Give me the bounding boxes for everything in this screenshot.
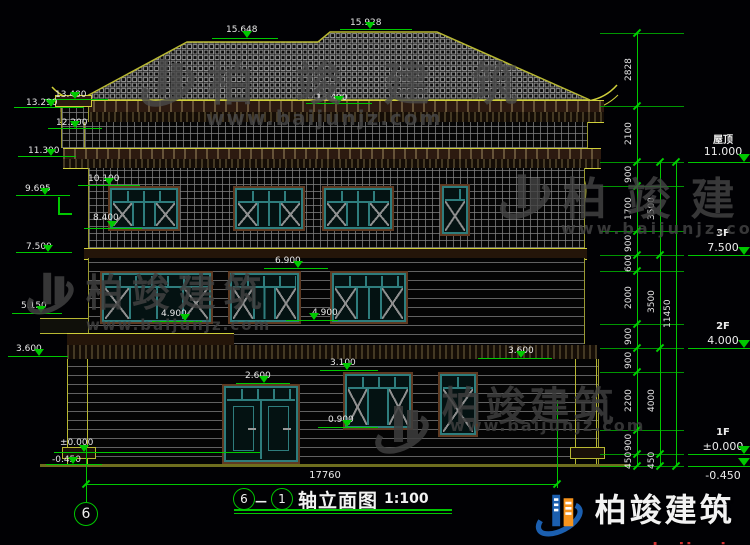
extension-line: [600, 466, 684, 467]
window-3f-small: [440, 184, 470, 236]
ground-line: [40, 464, 630, 467]
dim-value: 2000: [622, 271, 636, 324]
elevation-marker: [18, 156, 76, 157]
axis-line-6: [86, 448, 87, 502]
title-underline: [234, 509, 452, 511]
door-leaf: [227, 401, 262, 459]
window-3f-3: [322, 186, 394, 231]
window-transom: [113, 191, 175, 203]
elevation-marker: [286, 320, 338, 321]
axis-bubble-6: 6: [74, 502, 98, 526]
watermark-left: 柏竣建筑 www.baijunjz.com: [24, 262, 271, 334]
watermark-top: 柏竣建筑 www.baijunjz.com: [138, 48, 560, 130]
footer-url: www.baijunjz.com: [595, 539, 750, 545]
window-3f-2: [233, 186, 305, 231]
elevation-marker: [318, 427, 378, 428]
elevation-marker: [16, 252, 72, 253]
dim-value: 900: [622, 324, 636, 348]
elevation-marker: [14, 107, 84, 108]
eave-upturn-right: [588, 85, 617, 101]
elevation-marker: [48, 128, 102, 129]
gutter-mark: [58, 197, 60, 213]
watermark-brand: 柏竣建筑: [208, 57, 560, 111]
level-marker: [688, 466, 750, 467]
title-axis-end: 1: [271, 488, 293, 510]
elevation-marker: [478, 358, 552, 359]
level-marker: [688, 255, 750, 256]
level-name: 2F: [688, 321, 750, 332]
title-dash: —: [255, 494, 267, 508]
elevation-marker: [264, 268, 328, 269]
elevation-marker: [54, 452, 260, 453]
elevation-marker: [78, 185, 140, 186]
watermark-url: www.baijunjz.com: [561, 219, 750, 238]
watermark-brand: 柏竣建筑: [563, 174, 750, 225]
brand-logo-icon-color: [533, 485, 589, 543]
door-leaf: [262, 401, 295, 459]
cad-elevation-drawing: 15.648 15.928 13.480 13.290 13.400 12.20…: [0, 0, 750, 545]
watermark-right: 柏竣建筑 www.baijunjz.com: [497, 163, 750, 238]
drawing-scale: 1:100: [384, 491, 429, 507]
elevation-marker: [236, 383, 290, 384]
level-marker: [688, 348, 750, 349]
dim-value: 600: [622, 255, 636, 271]
watermark-brand: 柏竣建筑: [86, 271, 270, 315]
window-2f-3: [330, 271, 408, 324]
dim-value: 3500: [645, 255, 659, 348]
dim-value: 2100: [622, 106, 636, 162]
extension-line: [600, 33, 684, 34]
dim-value: 450: [645, 454, 659, 466]
level-marker: [688, 454, 750, 455]
dim-value: 4000: [645, 348, 659, 454]
level-name: 1F: [688, 427, 750, 438]
extension-line: [600, 106, 684, 107]
level-value-ground: -0.450: [688, 469, 750, 482]
title-underline-2: [234, 513, 452, 514]
watermark-brand: 柏竣建筑: [442, 384, 618, 430]
watermark-center: 柏竣建筑 www.baijunjz.com: [372, 394, 645, 435]
footer-brand: 柏竣建筑: [595, 491, 735, 529]
width-dim-value: 17760: [295, 470, 355, 481]
window-3f-1: [108, 186, 180, 231]
title-axis-start: 6: [233, 488, 255, 510]
elevation-marker: [8, 356, 68, 357]
elevation-marker: [46, 464, 102, 465]
watermark-url: www.baijunjz.com: [86, 316, 271, 334]
elevation-marker: [84, 228, 142, 229]
dim-value: 900: [622, 348, 636, 372]
brand-logo-footer: 柏竣建筑 www.baijunjz.com: [533, 485, 750, 545]
elevation-marker: [212, 38, 278, 39]
gutter-mark: [58, 213, 72, 215]
level-name: 屋顶: [688, 131, 750, 146]
brand-logo-icon: [138, 48, 202, 114]
elevation-marker: [320, 370, 378, 371]
width-dim-line: [86, 484, 557, 485]
elevation-marker: [16, 195, 70, 196]
elevation-marker: [340, 29, 412, 30]
dim-value: 2828: [622, 33, 636, 106]
